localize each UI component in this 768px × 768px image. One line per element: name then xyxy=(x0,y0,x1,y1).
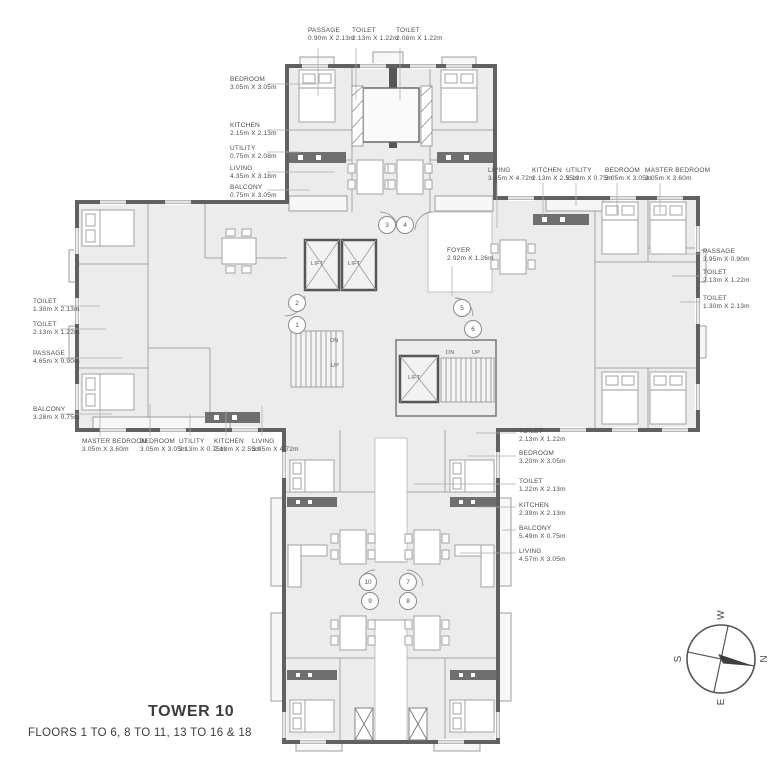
room-label: BEDROOM3.05m X 3.05m xyxy=(230,76,277,92)
unit-number: 2 xyxy=(288,294,306,312)
unit-number: 7 xyxy=(399,573,417,591)
compass-rose: W N E S xyxy=(676,614,766,704)
compass-west-label: W xyxy=(715,609,727,621)
compass-north-label: N xyxy=(758,653,768,665)
room-label: KITCHEN2.39m X 2.13m xyxy=(519,502,566,518)
lift-label: LIFT xyxy=(311,261,324,267)
unit-number: 5 xyxy=(453,299,471,317)
room-label: BEDROOM3.20m X 3.05m xyxy=(519,450,566,466)
room-label: PASSAGE3.95m X 0.90m xyxy=(703,248,750,264)
unit-number: 4 xyxy=(396,216,414,234)
lift-label: LIFT xyxy=(408,375,421,381)
room-label: TOILET1.22m X 2.13m xyxy=(519,478,566,494)
compass-graphic xyxy=(676,614,766,704)
unit-number: 8 xyxy=(399,592,417,610)
stair-dn-label: DN xyxy=(330,338,339,344)
floors-subtitle: FLOORS 1 TO 6, 8 TO 11, 13 TO 16 & 18 xyxy=(28,727,252,739)
floorplan-drawing xyxy=(0,0,768,768)
stair-up-label: UP xyxy=(331,363,339,369)
room-label: PASSAGE4.65m X 0.90m xyxy=(33,350,80,366)
room-label: TOILET2.13m X 1.22m xyxy=(703,269,750,285)
room-label: LIVING3.05m X 4.72m xyxy=(488,167,535,183)
unit-number: 10 xyxy=(359,573,377,591)
room-label: PASSAGE0.90m X 2.13m xyxy=(308,27,355,43)
room-label: FOYER2.92m X 1.26m xyxy=(447,247,494,263)
room-label: BALCONY5.49m X 0.75m xyxy=(519,525,566,541)
stair-dn-label: DN xyxy=(446,350,455,356)
room-label: BALCONY0.75m X 3.05m xyxy=(230,184,277,200)
lift-label: LIFT xyxy=(348,261,361,267)
room-label: TOILET2.13m X 1.22m xyxy=(33,321,80,337)
room-label: TOILET1.30m X 2.13m xyxy=(703,295,750,311)
unit-number: 6 xyxy=(464,320,482,338)
floorplan-sheet: PASSAGE0.90m X 2.13m TOILET2.13m X 1.22m… xyxy=(0,0,768,768)
room-label: TOILET2.13m X 1.22m xyxy=(519,428,566,444)
stair-up-label: UP xyxy=(472,350,480,356)
room-label: MASTER BEDROOM3.05m X 3.60m xyxy=(82,438,147,454)
tower-title: TOWER 10 xyxy=(148,703,234,721)
unit-number: 3 xyxy=(378,216,396,234)
room-label: LIVING3.05m X 4.72m xyxy=(252,438,299,454)
compass-east-label: E xyxy=(715,696,727,708)
unit-number: 1 xyxy=(288,316,306,334)
room-label: TOILET2.13m X 1.22m xyxy=(352,27,399,43)
room-label: LIVING4.57m X 3.05m xyxy=(519,548,566,564)
compass-south-label: S xyxy=(672,653,684,665)
room-label: BALCONY3.28m X 0.75m xyxy=(33,406,80,422)
room-label: TOILET1.30m X 2.13m xyxy=(33,298,80,314)
room-label: MASTER BEDROOM3.05m X 3.60m xyxy=(645,167,710,183)
unit-number: 9 xyxy=(361,592,379,610)
room-label: TOILET2.08m X 1.22m xyxy=(396,27,443,43)
room-label: LIVING4.35m X 3.18m xyxy=(230,165,277,181)
room-label: KITCHEN2.15m X 2.13m xyxy=(230,122,277,138)
room-label: UTILITY0.75m X 2.08m xyxy=(230,145,277,161)
